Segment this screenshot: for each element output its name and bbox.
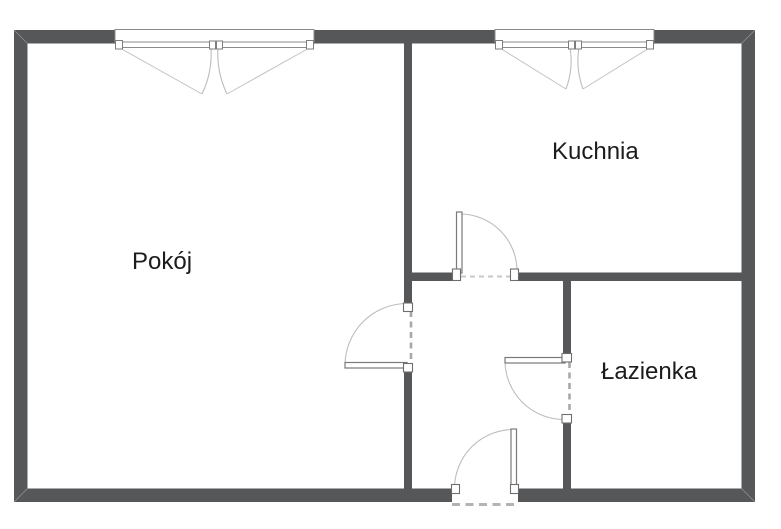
- interior-wall-kitchen-left: [404, 273, 453, 282]
- door-jamb: [562, 415, 572, 424]
- window-jamb-cap: [496, 41, 503, 50]
- window-jamb-cap: [647, 41, 654, 50]
- room-door: [345, 303, 413, 372]
- window-sash-line: [119, 48, 202, 95]
- room-label-pokoj: Pokój: [132, 249, 192, 275]
- bathroom-door: [505, 354, 572, 424]
- window-center-cap: [576, 41, 582, 49]
- door-jamb: [404, 303, 413, 312]
- window-center-cap: [210, 41, 216, 49]
- floor-plan-drawing: [0, 0, 781, 529]
- window-sash-line: [227, 48, 310, 95]
- floor-plan: Pokój Kuchnia Łazienka: [0, 0, 781, 529]
- room-label-kuchnia: Kuchnia: [552, 139, 639, 165]
- interior-wall-bathroom-lower: [563, 423, 571, 489]
- window-sash-arc: [218, 48, 227, 95]
- window-sash-arc: [566, 48, 571, 90]
- interior-wall-bathroom-upper: [563, 281, 571, 354]
- room-window: [115, 30, 314, 95]
- door-leaf: [457, 212, 463, 273]
- window-sash-line: [499, 48, 566, 90]
- door-leaf: [345, 363, 407, 369]
- door-jamb: [562, 354, 572, 363]
- outer-walls: [14, 30, 755, 502]
- door-leaf: [511, 429, 517, 489]
- room-label-lazienka: Łazienka: [601, 359, 697, 385]
- door-swing-arc: [460, 214, 517, 271]
- interior-wall-room-upper: [404, 44, 412, 304]
- interior-wall-room-lower: [404, 372, 412, 489]
- door-jamb: [452, 485, 460, 494]
- entrance-opening: [452, 488, 518, 503]
- outer-wall-bottom: [14, 489, 755, 503]
- entrance-door: [452, 429, 519, 505]
- interior-walls: [404, 44, 742, 490]
- window-jamb-cap: [307, 41, 314, 50]
- door-swing-arc: [455, 430, 514, 489]
- window-sash-arc: [578, 48, 583, 90]
- door-jamb: [453, 269, 461, 281]
- door-jamb: [511, 485, 519, 494]
- door-swing-arc: [505, 361, 564, 420]
- window-sash-arc: [202, 48, 211, 95]
- door-jamb: [511, 269, 519, 281]
- outer-wall-right: [742, 30, 756, 502]
- door-jamb: [404, 364, 413, 373]
- door-swing-arc: [345, 304, 407, 366]
- interior-wall-kitchen-right: [518, 273, 742, 282]
- door-leaf: [505, 358, 565, 364]
- window-jamb-cap: [116, 41, 123, 50]
- window-sash-line: [583, 48, 650, 90]
- kitchen-door: [453, 212, 519, 281]
- window-center-cap: [217, 41, 223, 49]
- window-center-cap: [569, 41, 575, 49]
- kitchen-window: [495, 30, 654, 90]
- outer-wall-left: [14, 30, 28, 502]
